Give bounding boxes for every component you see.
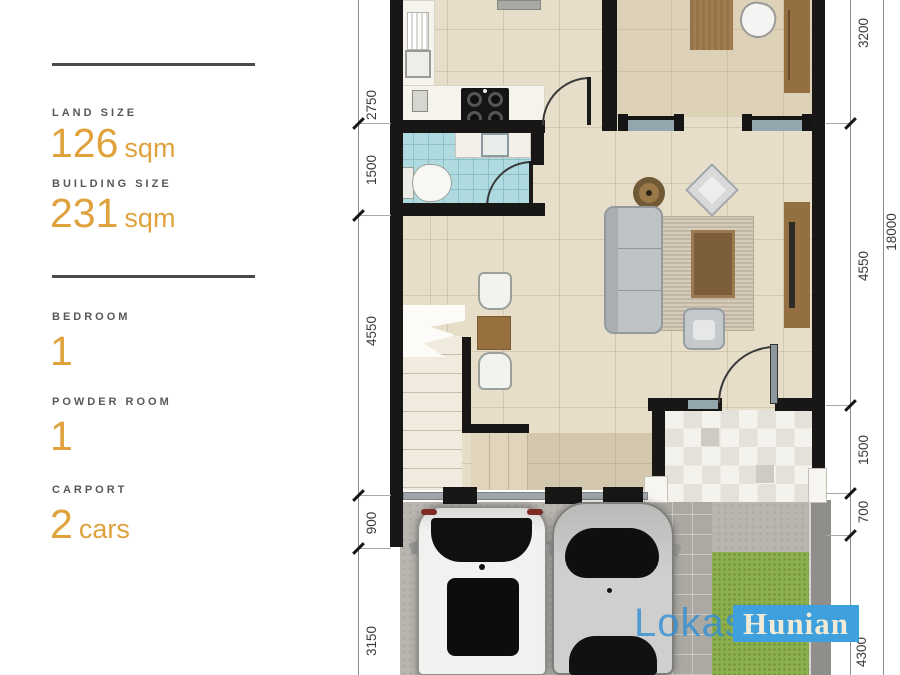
sofa [604,206,663,334]
land-size-label: LAND SIZE [52,107,137,119]
terrace-tile-accent [701,428,719,446]
land-size-value: 126sqm [50,122,175,165]
dining-chair [478,272,512,310]
car-antenna [607,588,612,593]
dim-label-left-2: 4550 [363,296,379,366]
stair-wall-vertical [462,337,471,433]
kitchen-appliance [412,90,428,112]
car-antenna [479,564,485,570]
bathroom-right-wall [531,120,544,165]
window-post [742,114,752,131]
tv-screen [789,222,795,308]
burner [488,92,503,107]
car-windshield [565,528,659,578]
dimension-line-total [883,0,884,675]
window-post [674,114,684,131]
dish-drainer [407,12,429,50]
burner [467,92,482,107]
side-table-center [646,190,652,196]
sofa-cushion-line [618,290,661,291]
bathroom-sink [481,133,509,157]
window-left [628,120,674,131]
dim-label-left-3: 900 [363,488,379,558]
dim-label-left-0: 2750 [363,70,379,140]
dim-label-right-3: 700 [855,477,871,547]
stove-knob [483,89,487,93]
dim-label-total: 18000 [883,197,899,267]
outer-wall-right [812,0,825,470]
divider-bottom [52,275,255,278]
terrace-tiles [665,410,812,502]
car-silver [552,502,674,675]
bedroom-value: 1 [50,330,73,373]
armchair [683,308,725,350]
dim-label-right-0: 3200 [855,0,871,68]
divider-top [52,63,255,66]
toilet-bowl [412,164,452,202]
side-table [633,177,665,209]
terrace-door-leaf [770,344,778,404]
dining-table [477,316,511,350]
carport-label: CARPORT [52,484,127,496]
car-rear-window [447,578,519,656]
sofa-backrest [606,208,618,332]
staircase-upper [402,336,462,490]
dimension-line-right [850,0,851,675]
car-windshield [431,518,532,562]
building-size-value: 231sqm [50,192,175,235]
dining-chair [478,352,512,390]
boundary-wall-right [809,500,831,675]
kitchen-study-wall [602,0,617,131]
accent-chair-seat [698,176,726,204]
watermark-hunian: Hunian [733,605,859,642]
outer-wall-left [390,0,403,547]
terrace-window [688,400,718,409]
window-right [752,120,802,131]
powder-room-value: 1 [50,415,73,458]
study-desk [690,0,733,50]
bathroom-door-leaf [529,161,533,207]
car-light [527,509,543,515]
floorplan-page: LAND SIZE 126sqm BUILDING SIZE 231sqm BE… [0,0,900,675]
range-hood [497,0,541,10]
building-size-label: BUILDING SIZE [52,178,172,190]
tv-console [784,202,810,328]
dimension-line-left [358,0,359,675]
gate-segment [443,487,477,504]
staircase-lower [471,433,528,490]
cabinet-handle [788,10,790,80]
kitchen-bathroom-wall [390,120,545,133]
kitchen-sink [405,50,431,78]
window-post [802,114,812,131]
car-white-suv [417,506,547,675]
terrace-wall-left [652,398,665,477]
kitchen-door-leaf [587,77,591,125]
study-cabinet [784,0,810,93]
stair-wall-horizontal [462,424,529,433]
terrace-wall-right-top [775,398,812,411]
dim-label-left-1: 1500 [363,135,379,205]
terrace-pillar-right [808,468,827,503]
dim-label-left-4: 3150 [363,606,379,675]
armchair-seat [693,320,715,340]
bathroom-bottom-wall [390,203,545,216]
bedroom-label: BEDROOM [52,311,130,323]
carport-value: 2cars [50,503,130,546]
powder-room-label: POWDER ROOM [52,396,172,408]
dim-label-right-2: 1500 [855,415,871,485]
car-light [421,509,437,515]
dim-label-right-1: 4550 [855,231,871,301]
terrace-tile-accent [756,465,774,483]
coffee-table [691,230,735,298]
window-post [618,114,628,131]
sofa-cushion-line [618,248,661,249]
extension-line [360,215,391,216]
